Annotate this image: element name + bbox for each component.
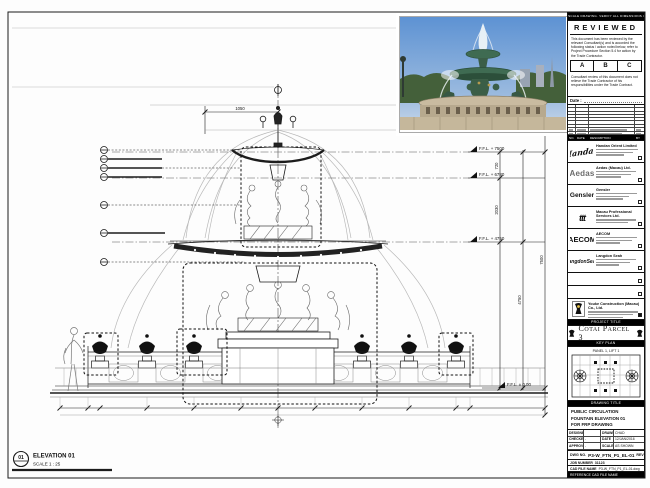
level-markers: F.F.L. + 7500 F.F.L. + 6780 F.F.L. + 475… bbox=[468, 146, 546, 388]
keynote-tags bbox=[101, 147, 246, 266]
empty-consultant-block bbox=[568, 286, 644, 299]
fountain-base bbox=[218, 332, 338, 384]
contractor-logo-icon bbox=[570, 301, 586, 318]
date-field-label: DATE bbox=[601, 437, 614, 444]
elevation-scale: SCALE 1 : 25 bbox=[33, 462, 61, 467]
consultant-name: Gensler bbox=[596, 188, 642, 192]
drawn-value: CHAD bbox=[614, 430, 644, 437]
consultant-name: Handan Orient Limited bbox=[596, 144, 642, 148]
job-number-label: JOB NUMBER bbox=[570, 461, 593, 465]
sheet-note-bar: DO NOT SCALE DRAWING. VERIFY ALL DIMENSI… bbox=[568, 13, 644, 21]
consultant-checkbox[interactable] bbox=[638, 279, 642, 283]
fountain-ornament-icon bbox=[636, 328, 644, 338]
drawing-title-line3: FOR FRP DRAWING bbox=[571, 422, 641, 429]
reference-cad-file-row: REFERENCE CAD FILE NAME bbox=[568, 472, 644, 477]
cad-file-value: P3-W_FTN_P1_EL-01.dwg bbox=[599, 467, 640, 471]
ttt-logo: ttt bbox=[570, 209, 594, 227]
dwg-no-value: P3-W_FTN_P1_EL-01 bbox=[588, 453, 634, 458]
bottom-dimension bbox=[58, 397, 548, 426]
drawn-label: DRAWN bbox=[601, 430, 614, 437]
review-option-a[interactable]: A bbox=[571, 61, 594, 71]
scope-box-urn-left bbox=[84, 333, 118, 375]
approved-value: - bbox=[584, 443, 601, 450]
consultant-name: AECOM bbox=[596, 232, 642, 236]
elevation-title: ELEVATION 01 bbox=[33, 454, 75, 460]
dwg-number-row: DWG NO. P3-W_FTN_P1_EL-01 REV 0 bbox=[568, 451, 644, 460]
aedas-logo: Aedas bbox=[570, 165, 594, 183]
checked-label: CHECKED bbox=[568, 437, 584, 444]
dim-total1: 4750 bbox=[517, 295, 522, 305]
consultant-name: Langdon Seah bbox=[596, 254, 642, 258]
review-status-options: A B C bbox=[570, 60, 642, 72]
reviewed-stamp-body2: Consultant review of this document does … bbox=[570, 73, 642, 89]
level-label-7500: F.F.L. + 7500 bbox=[479, 146, 505, 151]
consultant-block-gensler: Gensler Gensler bbox=[568, 185, 644, 207]
cad-file-label: CAD FILE NAME bbox=[570, 467, 597, 471]
dim-total2: 7500 bbox=[539, 255, 544, 265]
consultant-block-langdon-seah: LangdonSeah Langdon Seah bbox=[568, 251, 644, 273]
designed-label: DESIGNED bbox=[568, 430, 584, 437]
drawing-title-line2: FOUNTAIN ELEVATION 01 bbox=[571, 416, 641, 423]
drawing-sheet: { "sheet_note": "DO NOT SCALE DRAWING. V… bbox=[0, 0, 650, 488]
level-datum-lines bbox=[112, 152, 470, 242]
checked-value: - bbox=[584, 437, 601, 444]
reviewed-stamp: REVIEWED This document has been reviewed… bbox=[568, 21, 644, 97]
level-label-0: F.F.L. ± 0.00 bbox=[507, 382, 531, 387]
reviewed-stamp-body1: This document has been reviewed by the r… bbox=[570, 35, 642, 59]
contractor-block: Youke Construction (Macau) Co., Ltd. bbox=[568, 299, 644, 320]
date-entry-line[interactable] bbox=[584, 99, 642, 103]
reviewed-stamp-title: REVIEWED bbox=[570, 22, 642, 35]
scale-label: SCALE bbox=[601, 443, 614, 450]
consultant-checkbox[interactable] bbox=[638, 222, 642, 226]
date-field-value: 12/JAN/2016 bbox=[614, 437, 644, 444]
consultant-checkbox[interactable] bbox=[638, 200, 642, 204]
consultant-checkbox[interactable] bbox=[638, 292, 642, 296]
dim-seg2: 2030 bbox=[494, 205, 499, 215]
consultant-checkbox[interactable] bbox=[638, 178, 642, 182]
aecom-logo: AECOM bbox=[570, 231, 594, 249]
key-plan-note: PANEL 1, LIFT 1 bbox=[593, 349, 620, 353]
elevation-bubble-number: 01 bbox=[18, 455, 24, 461]
contractor-checkbox[interactable] bbox=[638, 313, 642, 317]
level-label-6780: F.F.L. + 6780 bbox=[479, 172, 505, 177]
consultant-checkbox[interactable] bbox=[638, 156, 642, 160]
title-block-column: DO NOT SCALE DRAWING. VERIFY ALL DIMENSI… bbox=[567, 12, 645, 478]
review-option-c[interactable]: C bbox=[618, 61, 641, 71]
dwg-no-label: DWG NO. bbox=[570, 453, 586, 457]
top-finial bbox=[260, 84, 296, 148]
consultant-checkbox[interactable] bbox=[638, 266, 642, 270]
scale-value: AS SHOWN bbox=[614, 443, 644, 450]
contractor-name: Youke Construction (Macau) Co., Ltd. bbox=[588, 302, 642, 310]
empty-consultant-block bbox=[568, 273, 644, 286]
review-option-b[interactable]: B bbox=[594, 61, 617, 71]
consultant-block-aedas: Aedas Aedas (Macau) Ltd. bbox=[568, 163, 644, 185]
elevation-marker: 01 ELEVATION 01 SCALE 1 : 25 bbox=[12, 452, 112, 471]
langdon-seah-logo: LangdonSeah bbox=[570, 253, 594, 271]
revision-table: NO.DATE DESCRIPTIONBY bbox=[568, 105, 644, 141]
consultant-name: Aedas (Macau) Ltd. bbox=[596, 166, 642, 170]
fountain-reference-photo bbox=[399, 16, 569, 133]
drawing-title-line1: PUBLIC CIRCULATION bbox=[571, 409, 641, 416]
consultant-block-handan: Handan Handan Orient Limited bbox=[568, 141, 644, 163]
consultant-block-aecom: AECOM AECOM bbox=[568, 229, 644, 251]
consultant-checkbox[interactable] bbox=[638, 244, 642, 248]
signoff-fields: DESIGNED DRAWN CHAD CHECKED - DATE 12/JA… bbox=[568, 430, 644, 451]
scale-figure bbox=[64, 328, 83, 392]
stamp-date-row: Date : bbox=[568, 97, 644, 105]
project-title: Cotai Parcel 3 bbox=[579, 324, 634, 342]
rev-label: REV bbox=[636, 453, 643, 457]
dim-seg1: 720 bbox=[494, 162, 499, 170]
date-label: Date : bbox=[570, 98, 582, 103]
dim-top-width: 1050 bbox=[235, 106, 245, 111]
revision-table-header: NO.DATE DESCRIPTIONBY bbox=[568, 135, 644, 140]
gensler-logo: Gensler bbox=[570, 187, 594, 205]
level-label-4750: F.F.L. + 4750 bbox=[479, 236, 505, 241]
approved-label: APPROVED bbox=[568, 443, 584, 450]
key-plan-box: PANEL 1, LIFT 1 bbox=[568, 347, 644, 401]
handan-logo: Handan bbox=[569, 141, 594, 163]
consultant-block-macau-professional: ttt Macau Professional Services Ltd. bbox=[568, 207, 644, 229]
fountain-ornament-icon bbox=[568, 328, 576, 338]
drawing-title-box: PUBLIC CIRCULATION FOUNTAIN ELEVATION 01… bbox=[568, 407, 644, 430]
bottom-centerline-symbol bbox=[272, 414, 284, 426]
designed-value bbox=[584, 430, 601, 437]
consultant-name: Macau Professional Services Ltd. bbox=[596, 210, 642, 218]
project-title-box: Cotai Parcel 3 bbox=[568, 326, 644, 341]
job-number-value: 31123 bbox=[595, 461, 605, 465]
